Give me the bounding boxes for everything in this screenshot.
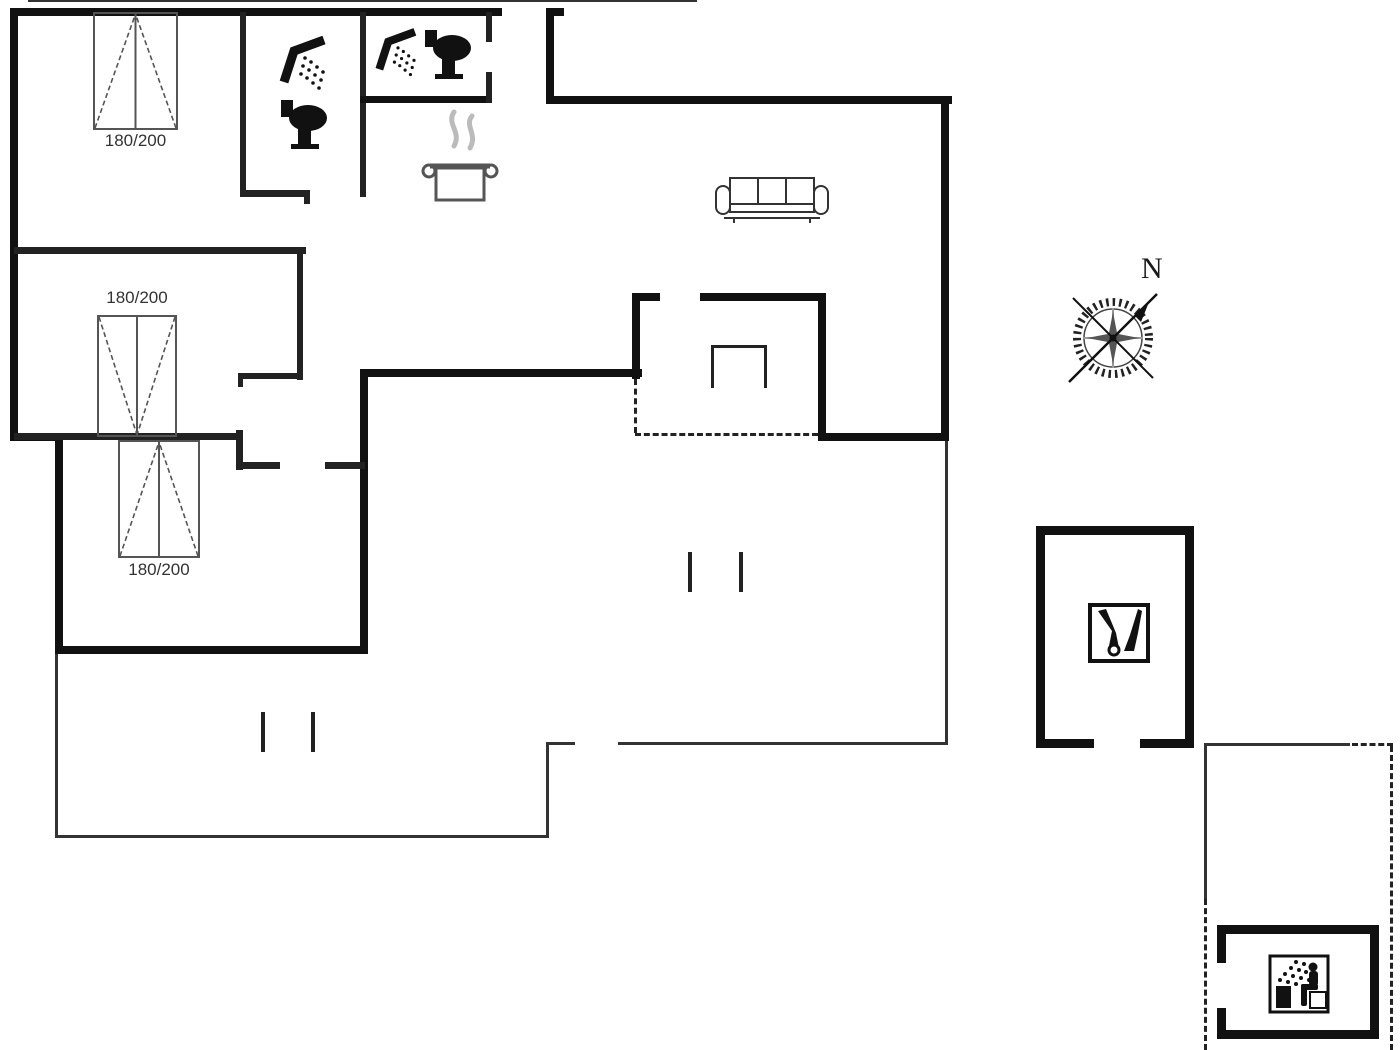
bathroom1-wall-bottom bbox=[240, 190, 310, 197]
hall-wall-right bbox=[360, 369, 368, 654]
sofa-icon bbox=[714, 176, 830, 224]
outbuilding-wall-top bbox=[1036, 526, 1194, 535]
sauna-wall-right bbox=[1370, 925, 1379, 1039]
opening-tick bbox=[739, 552, 743, 592]
sauna-terrace-edge-top bbox=[1204, 743, 1350, 746]
outer-wall-top bbox=[10, 8, 502, 16]
hall-corner-wall-horiz bbox=[236, 462, 280, 469]
fireplace-icon bbox=[711, 345, 767, 388]
bedroom3-door-stub bbox=[325, 462, 365, 469]
outer-wall-bottom-right bbox=[822, 433, 949, 441]
dashed-boundary-fireplace-bottom bbox=[635, 433, 818, 436]
bedroom2-door-wall bbox=[238, 373, 303, 379]
opening-tick bbox=[261, 712, 265, 752]
compass-north-label: N bbox=[1141, 252, 1163, 286]
garden-tools-icon bbox=[1088, 603, 1150, 663]
sauna-wall-left-a bbox=[1217, 925, 1226, 963]
shower-icon bbox=[278, 36, 332, 96]
outer-wall-bottom bbox=[55, 646, 368, 654]
bedroom2-door-jamb bbox=[238, 373, 243, 387]
outbuilding-wall-bottom-a bbox=[1036, 739, 1094, 748]
bathroom1-door-jamb bbox=[304, 190, 310, 204]
cooking-pot-icon bbox=[420, 106, 500, 204]
double-bed-icon bbox=[97, 315, 177, 437]
outbuilding-wall-right bbox=[1185, 526, 1194, 748]
outbuilding-wall-bottom-b bbox=[1140, 739, 1194, 748]
terrace-edge-step bbox=[546, 742, 549, 838]
fireplace-wall-left-stub bbox=[632, 293, 660, 301]
terrace-edge-bottom-upper bbox=[618, 742, 948, 745]
bedroom2-wall-right bbox=[297, 247, 303, 380]
outbuilding-wall-left bbox=[1036, 526, 1045, 748]
bed-size-label: 180/200 bbox=[95, 288, 179, 308]
fireplace-wall-right bbox=[818, 293, 826, 441]
hall-wall-top bbox=[360, 369, 642, 377]
outer-wall-left bbox=[10, 8, 18, 441]
terrace-edge-stub bbox=[549, 742, 575, 745]
sauna-wall-bottom bbox=[1217, 1030, 1379, 1039]
fireplace-wall-left bbox=[632, 293, 640, 379]
bed-size-label: 180/200 bbox=[116, 560, 202, 580]
sauna-wall-left-b bbox=[1217, 1008, 1226, 1039]
shower-icon bbox=[374, 28, 422, 82]
toilet-icon bbox=[280, 100, 328, 152]
bed-size-label: 180/200 bbox=[93, 131, 178, 151]
outer-wall-right bbox=[941, 96, 949, 441]
bedroom1-wall-bottom bbox=[14, 247, 306, 254]
sauna-terrace-dash-top bbox=[1352, 743, 1393, 746]
opening-tick bbox=[688, 552, 692, 592]
bathroom2-wall-right-a bbox=[486, 12, 492, 42]
dashed-boundary-fireplace-left bbox=[634, 379, 637, 433]
floor-plan: 180/200 180/200 180/200 bbox=[0, 0, 1400, 1050]
sauna-terrace-dash-right bbox=[1390, 746, 1393, 1050]
sauna-terrace-edge-left bbox=[1204, 743, 1207, 899]
bathroom-divider-wall bbox=[360, 12, 366, 197]
toilet-icon bbox=[424, 30, 472, 82]
top-edge-line bbox=[28, 0, 697, 2]
double-bed-icon bbox=[93, 12, 178, 130]
bathroom2-wall-right-b bbox=[486, 72, 492, 103]
fireplace-wall-top bbox=[700, 293, 826, 301]
terrace-edge-left bbox=[55, 654, 58, 838]
terrace-edge-bottom-lower bbox=[57, 835, 549, 838]
bathroom1-wall-left bbox=[240, 12, 246, 197]
opening-tick bbox=[311, 712, 315, 752]
sauna-terrace-dash-left bbox=[1204, 899, 1207, 1050]
sauna-wall-top bbox=[1217, 925, 1379, 934]
entry-wall-side bbox=[546, 8, 554, 104]
outer-wall-top-right bbox=[546, 96, 952, 104]
sauna-icon bbox=[1268, 954, 1330, 1014]
compass-rose-icon bbox=[1063, 288, 1163, 388]
bathroom2-wall-bottom bbox=[360, 96, 492, 103]
terrace-edge-right bbox=[945, 441, 948, 745]
outer-wall-left-lower bbox=[55, 433, 63, 654]
double-bed-icon bbox=[118, 440, 200, 558]
